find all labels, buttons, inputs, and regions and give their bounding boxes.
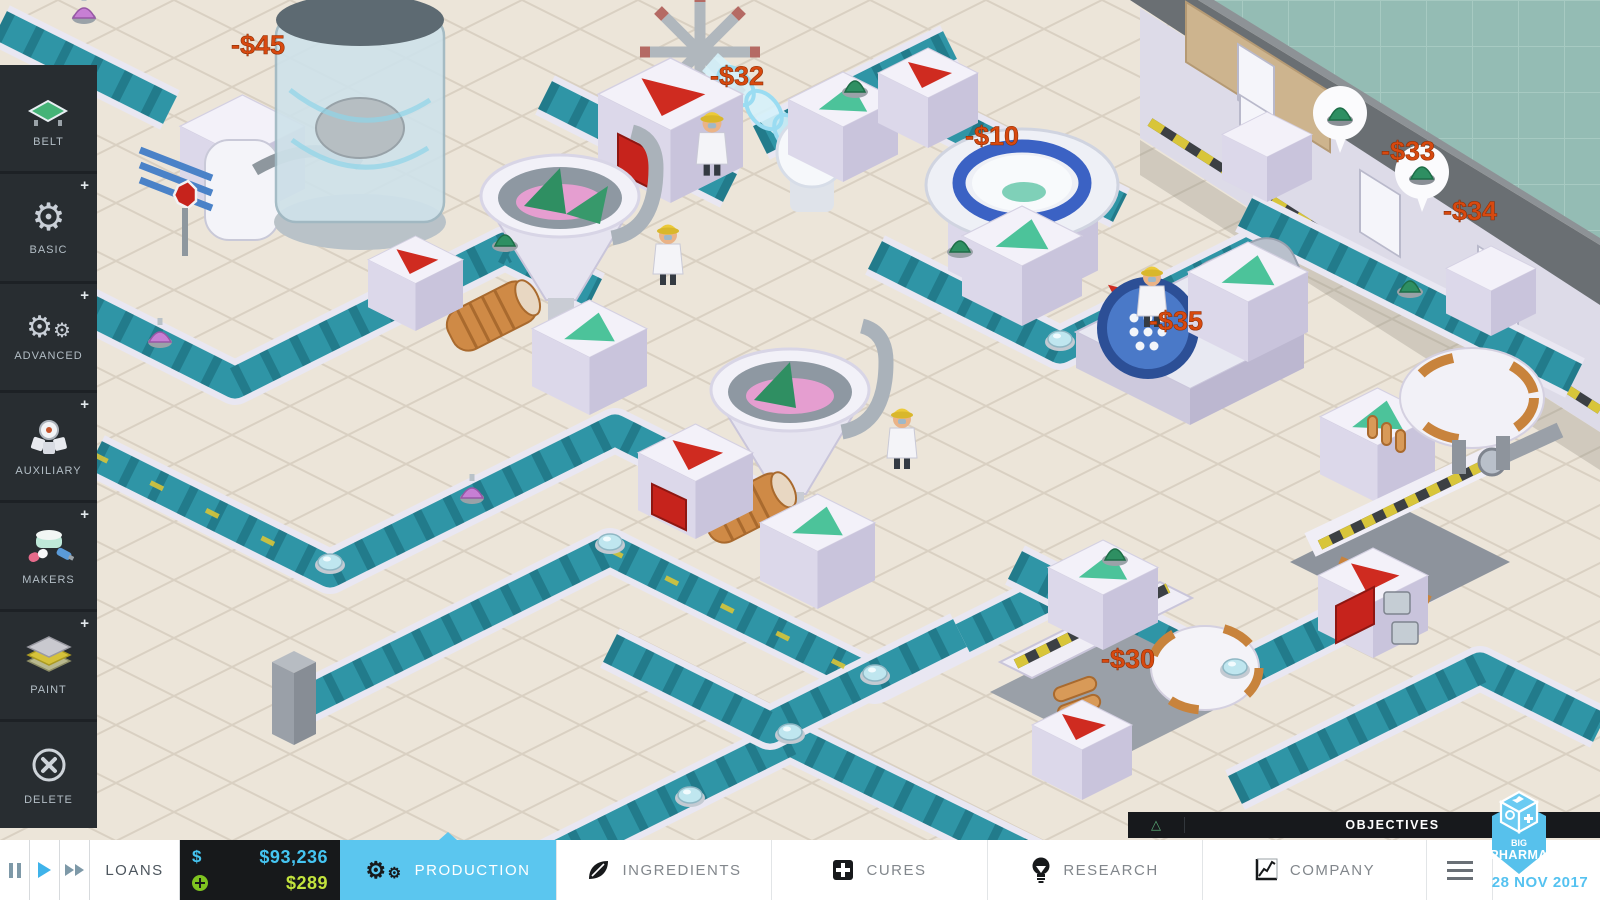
pause-button[interactable] xyxy=(0,840,30,900)
production-gears-icon: ⚙⚙ xyxy=(366,857,403,884)
tab-company[interactable]: COMPANY xyxy=(1203,840,1427,900)
hamburger-icon xyxy=(1447,861,1473,864)
pill-maker-icon xyxy=(24,525,74,567)
sidebar-item-label: BASIC xyxy=(29,244,67,256)
tab-production[interactable]: ⚙⚙ PRODUCTION xyxy=(340,840,557,900)
active-tab-notch xyxy=(439,832,457,840)
sidebar-item-label: BELT xyxy=(33,136,64,148)
sidebar-item-basic[interactable]: + ⚙ BASIC xyxy=(0,174,97,283)
expand-plus-icon[interactable]: + xyxy=(80,506,89,523)
income-value: $289 xyxy=(286,873,328,894)
factory-viewport[interactable]: -$45 -$32 -$10 -$33 -$34 -$35 -$30 xyxy=(0,0,1600,900)
currency-symbol: $ xyxy=(192,847,201,867)
fast-forward-button[interactable] xyxy=(60,840,90,900)
game-date: 28 NOV 2017 xyxy=(1486,874,1594,891)
tab-label: CURES xyxy=(866,862,926,879)
cost-label: -$32 xyxy=(710,61,764,91)
delete-icon xyxy=(27,743,71,787)
cost-label: -$33 xyxy=(1381,136,1435,166)
sidebar-item-label: MAKERS xyxy=(22,574,74,586)
paint-layers-icon xyxy=(24,635,74,677)
gear-icon: ⚙ xyxy=(31,199,65,237)
sidebar-item-auxiliary[interactable]: + AUXILIARY xyxy=(0,393,97,502)
tab-cures[interactable]: CURES xyxy=(772,840,988,900)
big-pharma-logo: BIG PHARMA xyxy=(1482,790,1556,882)
pillar xyxy=(272,651,316,745)
expand-plus-icon[interactable]: + xyxy=(80,615,89,632)
bottom-bar: LOANS $ $93,236 $289 ⚙⚙ PRODUCTION INGRE… xyxy=(0,840,1600,900)
sidebar-item-makers[interactable]: + MAKERS xyxy=(0,503,97,612)
play-icon xyxy=(38,862,51,878)
tab-label: RESEARCH xyxy=(1063,862,1158,879)
cost-label: -$30 xyxy=(1101,644,1155,674)
sidebar-item-belt[interactable]: BELT xyxy=(0,65,97,174)
cost-label: -$34 xyxy=(1443,196,1497,226)
sidebar-item-label: PAINT xyxy=(30,684,67,696)
tab-ingredients[interactable]: INGREDIENTS xyxy=(557,840,772,900)
plus-square-icon xyxy=(832,859,854,881)
tab-label: PRODUCTION xyxy=(415,862,531,879)
double-gear-icon: ⚙⚙ xyxy=(26,313,71,343)
play-button[interactable] xyxy=(30,840,60,900)
expand-plus-icon[interactable]: + xyxy=(80,287,89,304)
cost-label: -$10 xyxy=(965,121,1019,151)
cash-balance: $93,236 xyxy=(259,847,328,868)
expand-plus-icon[interactable]: + xyxy=(80,396,89,413)
sidebar-item-label: DELETE xyxy=(24,794,73,806)
sidebar-item-label: AUXILIARY xyxy=(15,465,81,477)
belt-icon xyxy=(26,89,72,129)
fast-forward-icon xyxy=(65,864,84,876)
money-panel: $ $93,236 $289 xyxy=(180,840,340,900)
leaf-icon xyxy=(586,858,610,882)
cost-label: -$45 xyxy=(231,30,285,60)
game-window: -$45 -$32 -$10 -$33 -$34 -$35 -$30 BELT … xyxy=(0,0,1600,900)
chart-icon xyxy=(1254,858,1278,882)
income-plus-icon xyxy=(192,875,208,891)
build-sidebar: BELT + ⚙ BASIC + ⚙⚙ ADVANCED + AUXILIARY… xyxy=(0,65,97,828)
tab-label: INGREDIENTS xyxy=(622,862,741,879)
loans-button[interactable]: LOANS xyxy=(90,840,180,900)
tab-research[interactable]: RESEARCH xyxy=(988,840,1203,900)
objective-marker-icon: △ xyxy=(1128,817,1185,833)
sidebar-item-delete[interactable]: DELETE xyxy=(0,722,97,828)
expand-plus-icon[interactable]: + xyxy=(80,177,89,194)
sidebar-item-paint[interactable]: + PAINT xyxy=(0,612,97,721)
logo-text-big: BIG xyxy=(1511,838,1527,848)
cost-label: -$35 xyxy=(1149,306,1203,336)
pause-icon xyxy=(9,863,21,878)
lightbulb-icon xyxy=(1031,857,1051,883)
robot-icon xyxy=(26,416,72,458)
logo-text-pharma: PHARMA xyxy=(1490,848,1548,862)
tab-label: COMPANY xyxy=(1290,862,1375,879)
sidebar-item-label: ADVANCED xyxy=(14,350,82,362)
sidebar-item-advanced[interactable]: + ⚙⚙ ADVANCED xyxy=(0,284,97,393)
